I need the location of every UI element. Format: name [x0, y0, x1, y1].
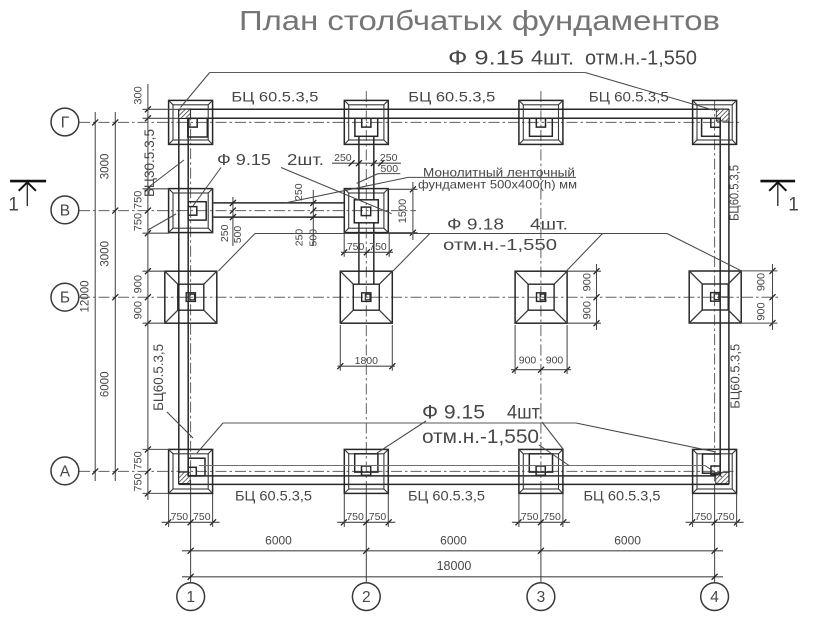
svg-text:1: 1 [186, 589, 195, 606]
svg-text:750: 750 [171, 511, 189, 523]
svg-text:БЦ30.5.3,5: БЦ30.5.3,5 [141, 129, 157, 197]
svg-text:900: 900 [755, 273, 767, 291]
svg-text:БЦ60.5.3,5: БЦ60.5.3,5 [150, 344, 166, 411]
svg-text:900: 900 [582, 301, 594, 319]
svg-text:Ф 9.15: Ф 9.15 [422, 401, 485, 423]
svg-text:1: 1 [8, 195, 19, 216]
svg-text:6000: 6000 [440, 533, 467, 547]
svg-text:БЦ60.5.3,5: БЦ60.5.3,5 [726, 165, 741, 221]
svg-text:БЦ 60.5.3,5: БЦ 60.5.3,5 [408, 89, 495, 105]
svg-text:750: 750 [132, 213, 144, 231]
svg-text:750: 750 [521, 511, 539, 523]
svg-text:3000: 3000 [100, 241, 112, 267]
svg-text:900: 900 [582, 273, 594, 291]
svg-text:А: А [60, 463, 71, 480]
svg-text:900: 900 [755, 302, 767, 320]
svg-text:БЦ 60.5.3,5: БЦ 60.5.3,5 [408, 488, 485, 503]
svg-text:1: 1 [788, 195, 799, 216]
svg-text:750: 750 [543, 511, 561, 523]
svg-text:750: 750 [695, 511, 713, 523]
svg-text:4шт.: 4шт. [531, 48, 574, 70]
svg-text:3000: 3000 [100, 154, 112, 180]
svg-text:отм.н.-1,550: отм.н.-1,550 [585, 48, 697, 70]
svg-text:750: 750 [346, 511, 364, 523]
svg-text:4шт.: 4шт. [530, 217, 568, 234]
svg-text:1800: 1800 [355, 355, 379, 367]
svg-text:БЦ 60.5.3,5: БЦ 60.5.3,5 [231, 89, 318, 105]
svg-text:900: 900 [132, 275, 144, 293]
svg-text:отм.н.-1,550: отм.н.-1,550 [443, 237, 557, 254]
svg-text:6000: 6000 [100, 372, 112, 398]
svg-text:500: 500 [232, 226, 244, 244]
svg-text:750: 750 [132, 451, 144, 469]
svg-text:250: 250 [293, 183, 305, 201]
svg-text:900: 900 [519, 354, 537, 366]
svg-text:2шт.: 2шт. [287, 152, 324, 169]
svg-text:отм.н.-1,550: отм.н.-1,550 [422, 426, 539, 448]
svg-text:750: 750 [347, 241, 365, 253]
svg-text:500: 500 [308, 229, 320, 247]
svg-text:4: 4 [710, 589, 719, 606]
svg-text:750: 750 [369, 241, 387, 253]
svg-text:В: В [60, 202, 70, 219]
svg-text:6000: 6000 [614, 533, 641, 547]
svg-text:2: 2 [362, 589, 371, 606]
svg-text:750: 750 [369, 511, 387, 523]
svg-text:3: 3 [537, 589, 546, 606]
svg-text:Ф 9.15: Ф 9.15 [448, 48, 524, 70]
svg-text:4шт.: 4шт. [507, 401, 543, 423]
svg-text:18000: 18000 [437, 559, 472, 573]
svg-text:Ф 9.18: Ф 9.18 [447, 217, 504, 234]
svg-text:500: 500 [381, 163, 399, 175]
svg-text:250: 250 [293, 229, 305, 247]
svg-text:Б: Б [60, 290, 70, 307]
svg-text:фундамент 500х400(h) мм: фундамент 500х400(h) мм [418, 178, 577, 192]
svg-text:План столбчатых фундаментов: План столбчатых фундаментов [239, 5, 720, 36]
svg-text:900: 900 [546, 354, 564, 366]
svg-text:Г: Г [61, 115, 70, 132]
svg-text:300: 300 [132, 86, 144, 104]
svg-text:БЦ60.5.3,5: БЦ60.5.3,5 [728, 344, 743, 409]
svg-text:БЦ 60.5.3,5: БЦ 60.5.3,5 [235, 488, 312, 503]
svg-text:12000: 12000 [80, 281, 92, 313]
svg-text:БЦ 60.5.3,5: БЦ 60.5.3,5 [589, 89, 669, 105]
svg-text:250: 250 [334, 152, 352, 164]
svg-text:Ф 9.15: Ф 9.15 [217, 152, 271, 169]
svg-text:900: 900 [132, 301, 144, 319]
svg-text:750: 750 [132, 473, 144, 491]
svg-text:750: 750 [193, 511, 211, 523]
svg-text:750: 750 [717, 511, 735, 523]
svg-text:1500: 1500 [397, 199, 409, 223]
svg-text:250: 250 [219, 224, 231, 242]
svg-text:БЦ 60.5.3,5: БЦ 60.5.3,5 [584, 488, 661, 503]
svg-text:6000: 6000 [265, 533, 292, 547]
